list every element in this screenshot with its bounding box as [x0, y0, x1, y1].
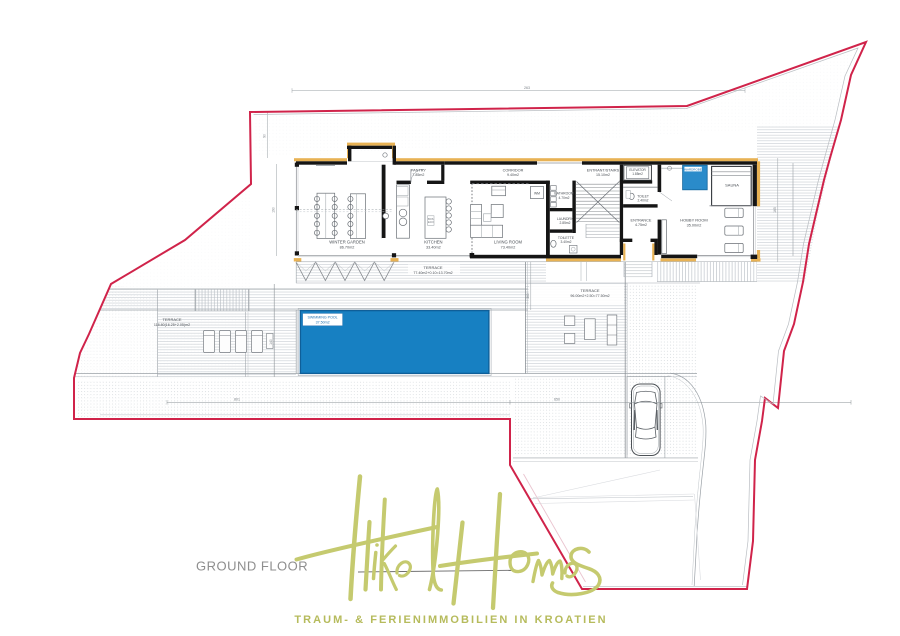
svg-text:4.75m2: 4.75m2 — [635, 223, 647, 227]
svg-text:SAUNA: SAUNA — [725, 182, 739, 187]
svg-text:118.80(16.25+2.05)m2: 118.80(16.25+2.05)m2 — [154, 323, 190, 327]
svg-text:CORRIDOR: CORRIDOR — [503, 168, 524, 172]
svg-text:77.40m2+0.10=13.70m2: 77.40m2+0.10=13.70m2 — [413, 271, 452, 275]
svg-text:140: 140 — [269, 339, 273, 345]
svg-text:TERRACE: TERRACE — [580, 288, 599, 293]
svg-text:9.40m2: 9.40m2 — [507, 173, 519, 177]
svg-text:33.40m2: 33.40m2 — [426, 246, 441, 250]
svg-text:90: 90 — [263, 134, 267, 138]
svg-text:TRAUM- & FERIENIMMOBILIEN IN K: TRAUM- & FERIENIMMOBILIEN IN KROATIEN — [294, 614, 607, 626]
svg-text:7.85m2: 7.85m2 — [412, 173, 424, 177]
svg-text:86.70m2: 86.70m2 — [340, 246, 355, 250]
svg-text:WINTER GARDEN: WINTER GARDEN — [329, 240, 365, 245]
svg-text:GROUND FLOOR: GROUND FLOOR — [196, 559, 308, 574]
svg-text:801: 801 — [234, 398, 240, 402]
svg-text:ENTRANCE: ENTRANCE — [631, 219, 652, 223]
svg-text:3.40m2: 3.40m2 — [561, 240, 572, 244]
svg-text:PANTRY: PANTRY — [411, 168, 427, 172]
svg-text:37.50m2: 37.50m2 — [316, 320, 330, 324]
svg-text:4.70m2: 4.70m2 — [559, 196, 570, 200]
svg-text:ECO: ECO — [428, 220, 434, 224]
svg-text:73.40m2: 73.40m2 — [501, 246, 516, 250]
svg-text:263: 263 — [524, 86, 530, 90]
svg-text:650: 650 — [554, 398, 560, 402]
svg-text:1.85m2: 1.85m2 — [632, 172, 643, 176]
svg-text:96.00m2+2.50=77.50m2: 96.00m2+2.50=77.50m2 — [570, 294, 609, 298]
svg-text:WM: WM — [534, 192, 540, 196]
svg-text:TERRACE: TERRACE — [162, 317, 181, 322]
svg-text:HOBBY ROOM: HOBBY ROOM — [680, 218, 708, 223]
svg-text:35.00m2: 35.00m2 — [687, 224, 702, 228]
svg-text:TERRACE: TERRACE — [423, 265, 442, 270]
svg-text:2.40m2: 2.40m2 — [638, 199, 649, 203]
svg-text:360: 360 — [526, 293, 530, 299]
svg-text:WARDROBE: WARDROBE — [684, 167, 702, 171]
svg-text:ENTRANT/STAIRS: ENTRANT/STAIRS — [587, 168, 620, 172]
svg-text:SWIMMING POOL: SWIMMING POOL — [308, 315, 338, 319]
svg-text:190: 190 — [272, 207, 276, 213]
svg-text:165: 165 — [773, 207, 777, 213]
svg-text:2.85m2: 2.85m2 — [560, 221, 571, 225]
svg-text:KITCHEN: KITCHEN — [424, 240, 442, 245]
svg-text:15.10m2: 15.10m2 — [596, 173, 610, 177]
svg-text:LIVING ROOM: LIVING ROOM — [494, 240, 522, 245]
